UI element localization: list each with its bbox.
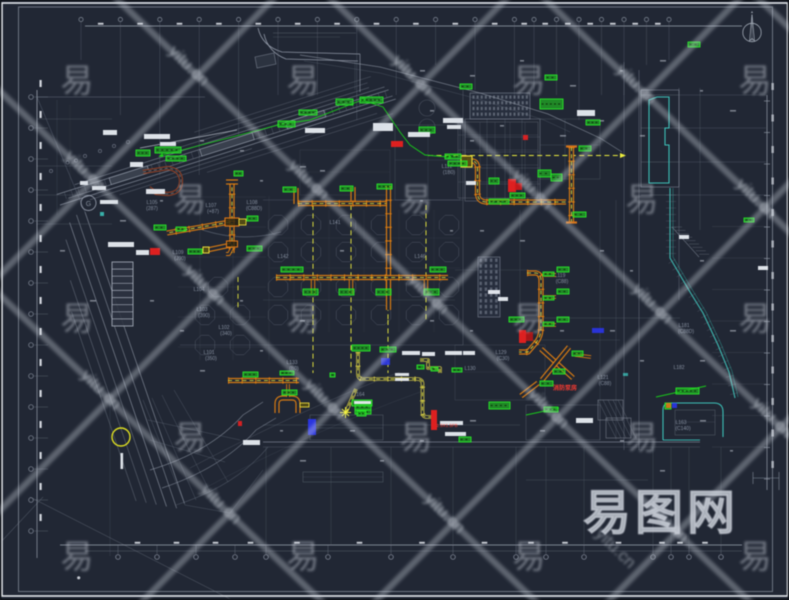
svg-text:易: 易 <box>61 538 94 575</box>
svg-text:(+87): (+87) <box>207 209 219 215</box>
svg-text:易图网: 易图网 <box>583 487 739 540</box>
svg-text:(C88D): (C88D) <box>246 206 262 212</box>
svg-text:L130: L130 <box>464 366 475 372</box>
svg-text:易: 易 <box>287 538 320 575</box>
svg-text:L146: L146 <box>414 254 425 260</box>
svg-text:(C140): (C140) <box>675 426 691 432</box>
svg-text:易: 易 <box>626 181 659 218</box>
svg-text:(C88): (C88) <box>556 279 569 285</box>
svg-text:消防泵房: 消防泵房 <box>553 384 577 392</box>
svg-text:2.5X1.5FB: 2.5X1.5FB <box>436 423 457 428</box>
svg-text:易: 易 <box>513 62 546 99</box>
svg-text:(340): (340) <box>220 331 232 337</box>
svg-text:易: 易 <box>174 419 207 456</box>
svg-text:G: G <box>86 201 91 208</box>
svg-text:(287): (287) <box>146 206 158 212</box>
svg-text:(390): (390) <box>198 313 210 319</box>
svg-text:易: 易 <box>400 181 433 218</box>
svg-text:易: 易 <box>513 538 546 575</box>
svg-text:易: 易 <box>739 538 772 575</box>
svg-text:易: 易 <box>174 181 207 218</box>
svg-text:(C88): (C88) <box>599 381 612 387</box>
svg-text:▲: ▲ <box>750 10 753 14</box>
svg-text:易: 易 <box>400 419 433 456</box>
svg-text:易: 易 <box>287 300 320 337</box>
svg-text:易: 易 <box>61 62 94 99</box>
svg-text:L182: L182 <box>673 365 684 371</box>
svg-text:易: 易 <box>513 300 546 337</box>
svg-text:易: 易 <box>626 419 659 456</box>
svg-text:易: 易 <box>739 300 772 337</box>
svg-text:L142: L142 <box>277 254 288 260</box>
svg-text:易: 易 <box>739 62 772 99</box>
svg-text:L141: L141 <box>329 220 340 226</box>
svg-text:易: 易 <box>287 62 320 99</box>
svg-text:(1B0): (1B0) <box>443 170 456 176</box>
svg-text:易: 易 <box>61 300 94 337</box>
svg-text:(350): (350) <box>205 356 217 362</box>
